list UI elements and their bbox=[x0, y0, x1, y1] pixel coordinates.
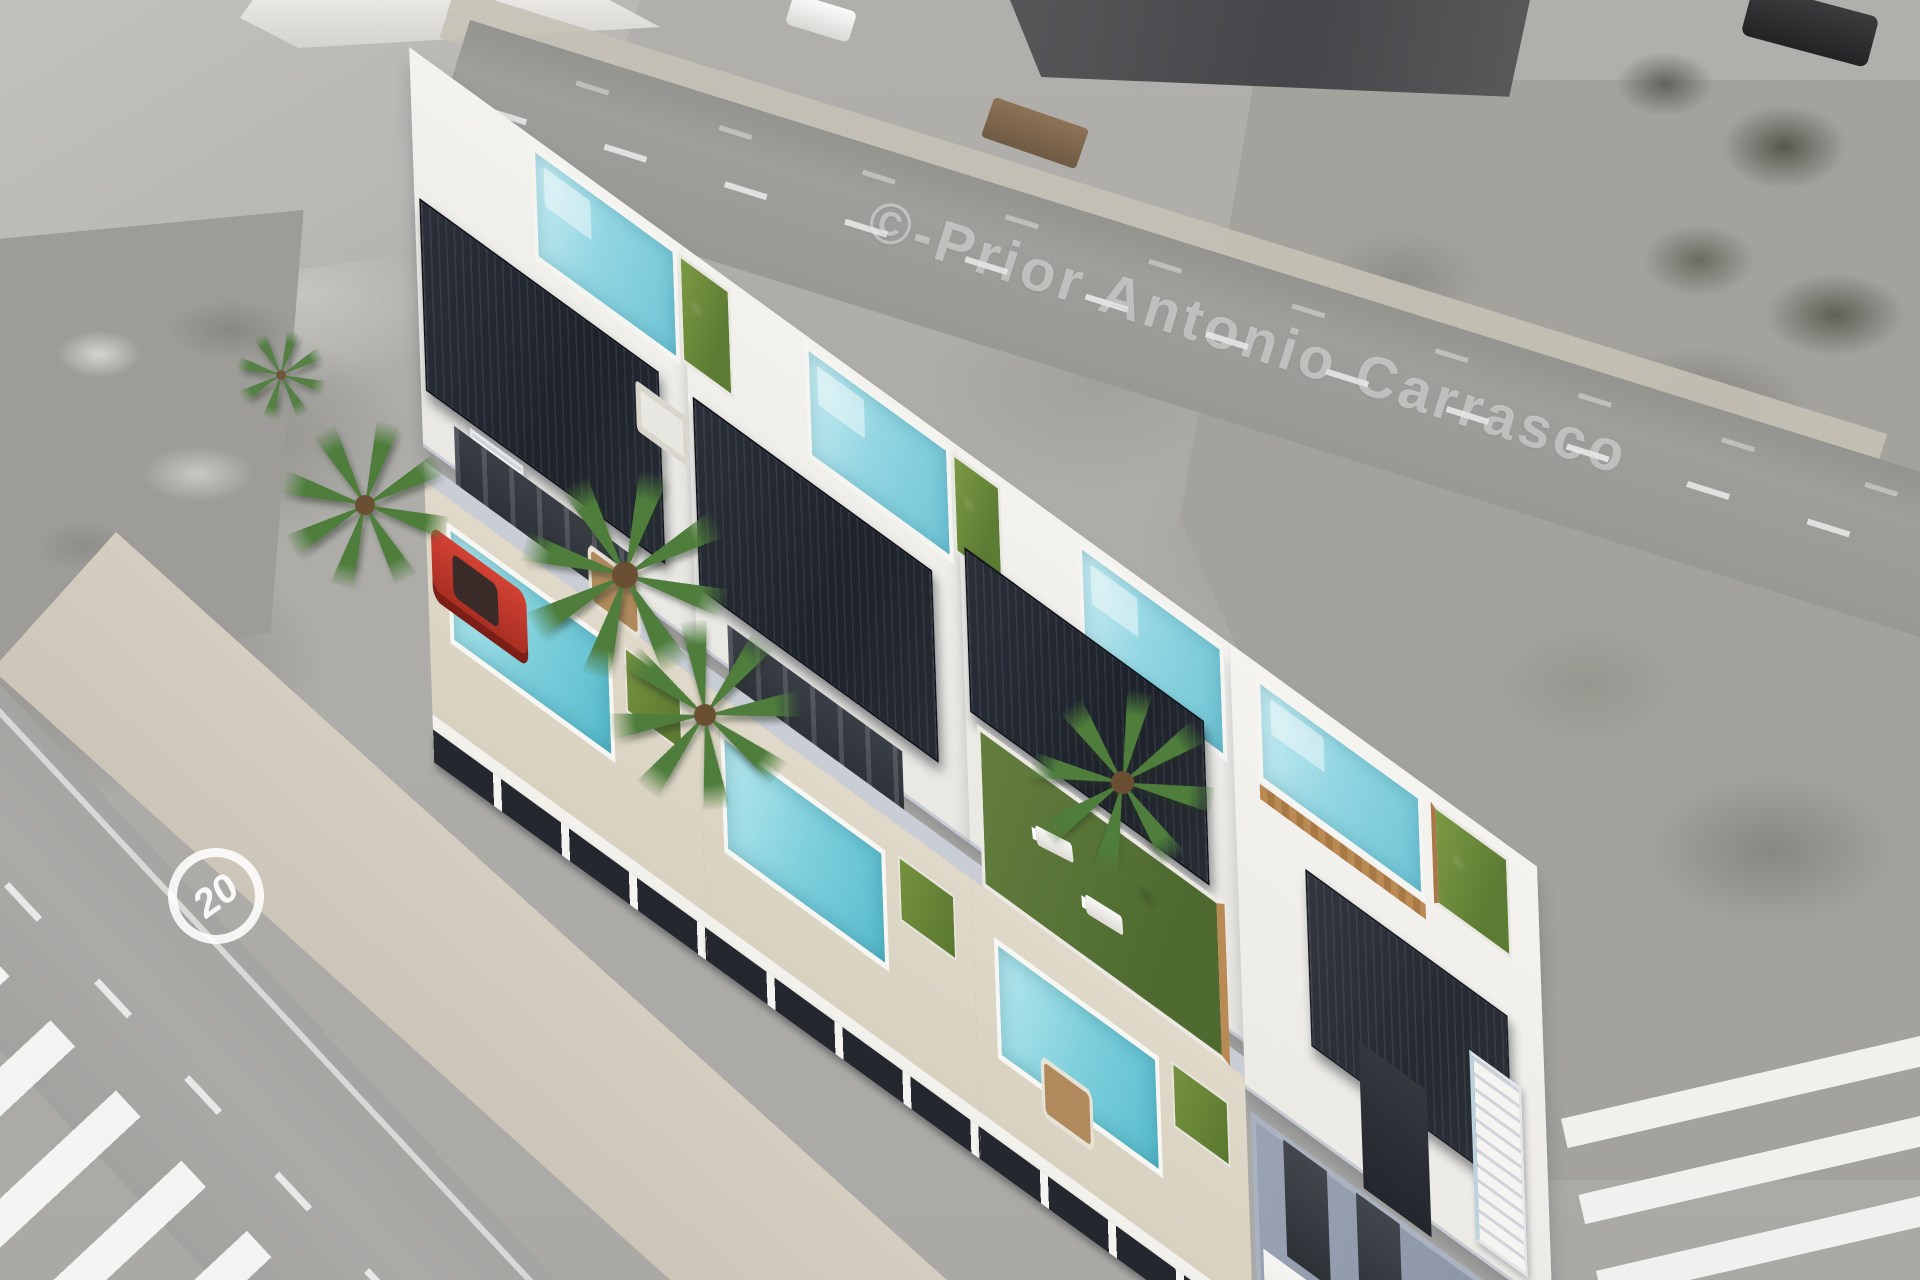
carport-door-1 bbox=[1283, 1139, 1331, 1280]
palm-tree bbox=[280, 420, 450, 590]
aerial-render-scene: 20 ©-Prior Antonio Carrasco bbox=[0, 0, 1920, 1280]
speed-limit-value: 20 bbox=[187, 863, 246, 928]
shrub bbox=[236, 330, 326, 420]
